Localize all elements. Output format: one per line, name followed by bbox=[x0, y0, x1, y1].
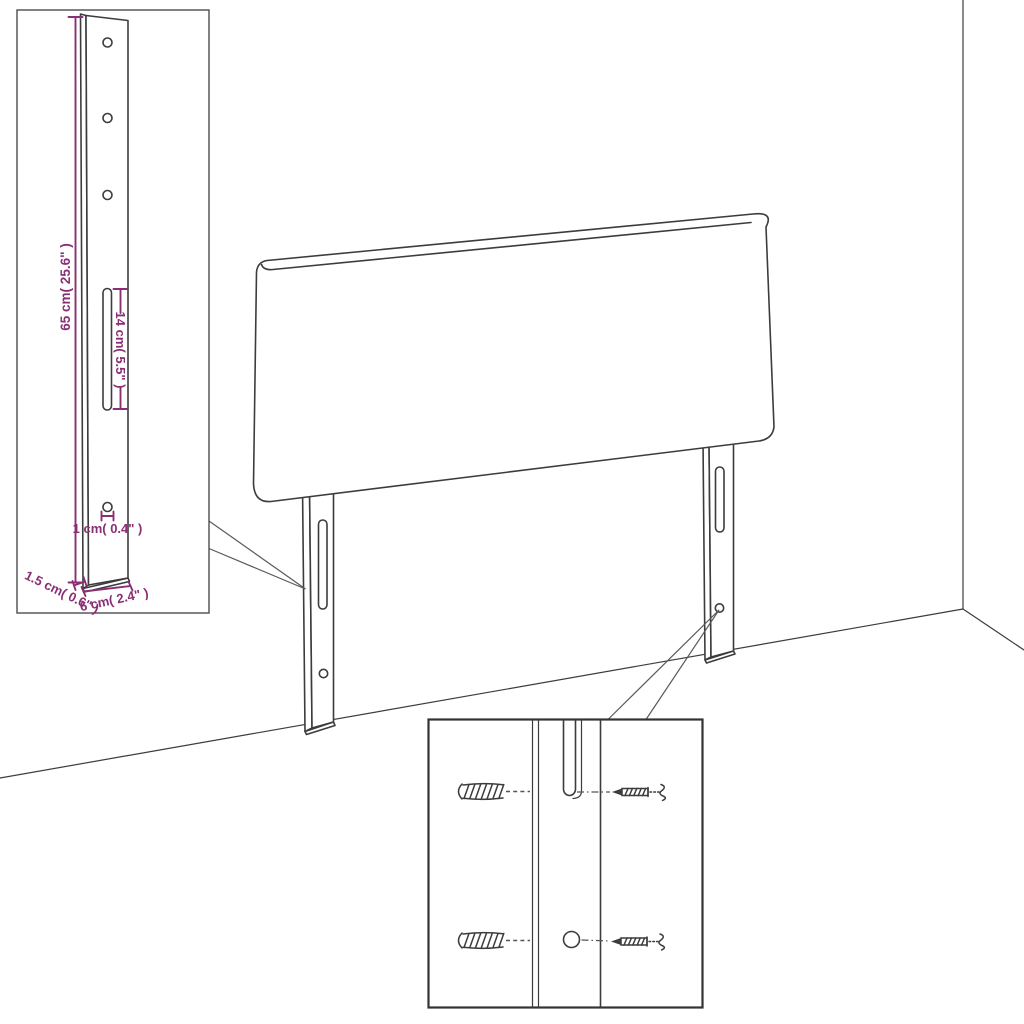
dim-slot-length-label: 14 cm( 5.5" ) bbox=[113, 312, 128, 389]
hardware-inset-box bbox=[429, 720, 703, 1008]
screw-leader-line bbox=[582, 940, 610, 941]
dim-hole-label: 1 cm( 0.4" ) bbox=[73, 521, 143, 536]
screw-icon bbox=[611, 934, 664, 950]
headboard-panel bbox=[254, 214, 775, 502]
leg-closeup-slot-depth bbox=[573, 720, 582, 799]
floor-line-right bbox=[963, 609, 1024, 650]
hardware-row-hole bbox=[459, 933, 665, 950]
headboard-diagram: 65 cm( 25.6" ) 14 cm( 5.5" ) 1 cm( 0.4" … bbox=[0, 0, 1024, 1024]
bracket-slot bbox=[103, 289, 112, 411]
left-leg-slot bbox=[319, 520, 328, 609]
leader-line bbox=[608, 610, 719, 720]
bracket-closeup bbox=[81, 14, 130, 592]
dim-total-height: 65 cm( 25.6" ) bbox=[58, 17, 83, 583]
floor-line-left bbox=[0, 609, 963, 778]
bracket-hole-4 bbox=[103, 503, 112, 512]
leg-closeup-hole bbox=[564, 932, 580, 948]
wall-plug-icon bbox=[459, 784, 504, 800]
left-leg-hole bbox=[319, 669, 327, 677]
leg-closeup bbox=[533, 720, 601, 1007]
right-leg-slot bbox=[716, 467, 725, 532]
wall-plug-icon bbox=[459, 933, 504, 949]
screw-icon bbox=[612, 785, 665, 801]
dim-total-height-label: 65 cm( 25.6" ) bbox=[58, 243, 73, 330]
bracket-hole-1 bbox=[103, 38, 112, 47]
bracket-callout-lines bbox=[209, 521, 306, 589]
hardware-row-slot bbox=[459, 784, 666, 801]
bracket-hole-3 bbox=[103, 191, 112, 200]
left-leg bbox=[303, 483, 336, 735]
leg-closeup-slot bbox=[564, 720, 576, 796]
headboard-outline bbox=[254, 214, 775, 502]
right-leg-hole bbox=[715, 604, 723, 612]
hardware-callout-lines bbox=[608, 610, 719, 720]
leader-line bbox=[646, 610, 719, 720]
dimension-inset: 65 cm( 25.6" ) 14 cm( 5.5" ) 1 cm( 0.4" … bbox=[17, 10, 209, 616]
product-diagram-canvas: 65 cm( 25.6" ) 14 cm( 5.5" ) 1 cm( 0.4" … bbox=[0, 0, 1024, 1024]
hardware-inset bbox=[429, 720, 703, 1008]
bracket-hole-2 bbox=[103, 114, 112, 123]
